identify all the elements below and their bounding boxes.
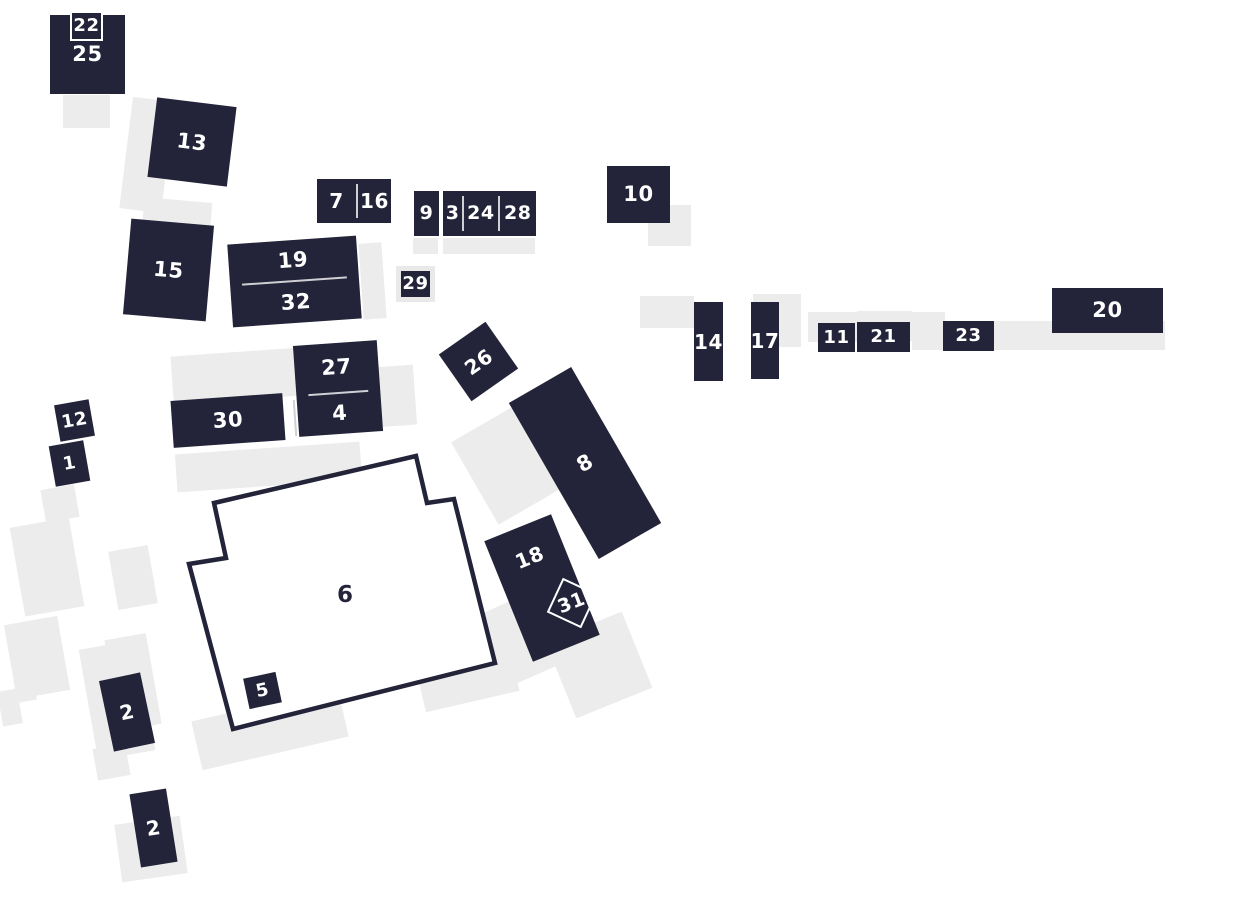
building-label: 2 (118, 701, 136, 724)
building-label: 17 (750, 331, 779, 351)
ground-shadow-shape (63, 95, 110, 128)
building-1[interactable]: 1 (49, 440, 91, 486)
building-label: 12 (60, 409, 89, 431)
campus-map: 2522131519327169324282910141711212320268… (0, 0, 1240, 900)
building-7-16-cell-16[interactable]: 16 (358, 179, 391, 223)
building-label: 18 (512, 543, 546, 572)
building-label: 1 (61, 454, 77, 474)
building-label: 9 (420, 204, 434, 223)
building-6-outline[interactable]: 6 (170, 450, 510, 740)
building-3-24-28-cell-24[interactable]: 24 (464, 191, 498, 236)
building-label: 24 (467, 204, 495, 223)
building-label: 28 (504, 204, 532, 223)
ground-shadow-shape (912, 312, 945, 350)
building-label: 10 (623, 184, 653, 205)
building-label: 8 (573, 450, 597, 476)
building-26[interactable]: 26 (439, 322, 518, 401)
building-21[interactable]: 21 (857, 322, 910, 352)
building-label: 3 (446, 204, 460, 223)
building-10[interactable]: 10 (607, 166, 670, 223)
building-27-4[interactable]: 274 (293, 340, 383, 437)
building-label: 25 (72, 44, 102, 65)
building-label: 22 (73, 17, 99, 35)
building-7-16-cell-7[interactable]: 7 (317, 179, 356, 223)
building-label: 26 (461, 345, 496, 378)
building-label: 29 (402, 275, 428, 293)
building-label: 31 (556, 589, 589, 617)
building-label: 11 (823, 329, 849, 347)
ground-shadow-shape (17, 687, 37, 703)
building-3-24-28-cell-28[interactable]: 28 (500, 191, 536, 236)
building-30[interactable]: 30 (170, 393, 285, 448)
building-23[interactable]: 23 (943, 321, 994, 351)
ground-shadow-shape (40, 484, 79, 522)
building-label: 7 (329, 191, 344, 211)
building-22[interactable]: 22 (70, 11, 103, 41)
ground-shadow-shape (108, 545, 158, 610)
ground-shadow-shape (640, 296, 694, 328)
ground-shadow-shape (4, 616, 70, 699)
building-label: 4 (331, 403, 348, 425)
building-label: 2 (145, 817, 162, 839)
building-label: 16 (360, 191, 389, 211)
building-label: 23 (955, 327, 981, 345)
building-label: 20 (1092, 300, 1122, 321)
building-20[interactable]: 20 (1052, 288, 1163, 333)
building-label: 32 (280, 291, 312, 314)
building-label: 13 (176, 130, 209, 155)
building-11[interactable]: 11 (818, 323, 855, 352)
building-17[interactable]: 17 (751, 302, 779, 379)
building-label: 6 (337, 582, 353, 608)
building-label: 27 (321, 356, 353, 379)
building-7-16[interactable]: 716 (317, 179, 391, 223)
ground-shadow-shape (358, 242, 386, 319)
building-12[interactable]: 12 (54, 399, 95, 442)
building-label: 15 (152, 258, 184, 282)
building-27-4-cell-4[interactable]: 4 (296, 391, 383, 437)
building-label: 30 (212, 409, 244, 432)
building-19-32[interactable]: 1932 (227, 236, 361, 328)
ground-shadow-shape (443, 238, 535, 254)
ground-shadow-shape (10, 517, 85, 616)
building-19-32-cell-32[interactable]: 32 (230, 277, 362, 327)
building-label: 5 (254, 680, 271, 700)
building-15[interactable]: 15 (123, 219, 214, 322)
building-label: 21 (870, 328, 896, 346)
building-label: 14 (694, 332, 723, 352)
building-3-24-28-cell-3[interactable]: 3 (443, 191, 462, 236)
building-3-24-28[interactable]: 32428 (443, 191, 536, 236)
building-9[interactable]: 9 (414, 191, 439, 236)
building-label: 19 (277, 249, 309, 272)
building-14[interactable]: 14 (694, 302, 723, 381)
building-27-4-cell-27[interactable]: 27 (293, 340, 380, 395)
ground-shadow-shape (413, 238, 438, 254)
building-29[interactable]: 29 (396, 266, 435, 302)
building-13[interactable]: 13 (147, 97, 236, 186)
